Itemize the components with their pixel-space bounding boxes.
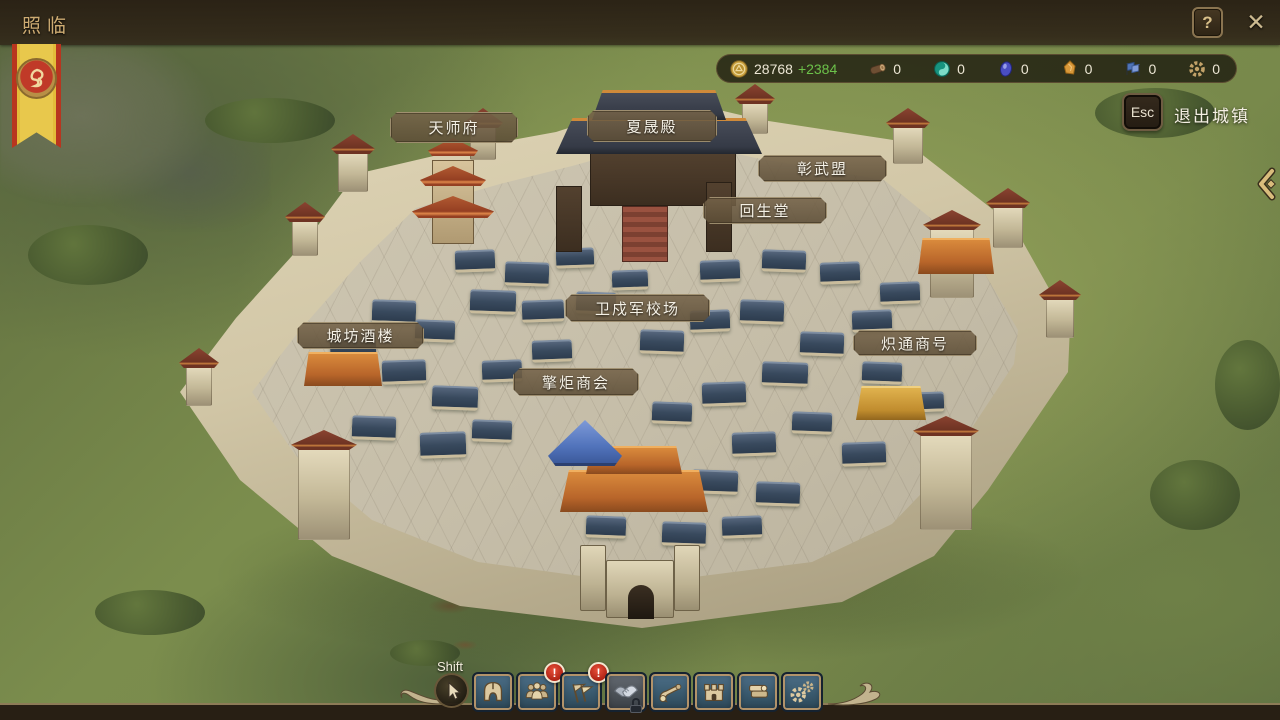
building-label-weishujunxiaochang[interactable]: 卫戍军校场 <box>565 294 710 322</box>
flags-button[interactable]: ! <box>560 672 602 712</box>
ledger-button[interactable] <box>737 672 779 712</box>
jade-value: 0 <box>957 61 965 77</box>
page-title: 照临 <box>22 11 72 38</box>
tree-cluster <box>205 98 335 143</box>
game-viewport: 天师府 夏晟殿 彰武盟 回生堂 卫戍军校场 城坊酒楼 擎炬商会 炽通商号 照临 … <box>0 0 1280 720</box>
building-label-text: 彰武盟 <box>797 158 848 179</box>
esc-keycap[interactable]: Esc <box>1122 93 1163 131</box>
wood-value: 0 <box>893 61 901 77</box>
building-label-xiashengdian[interactable]: 夏晟殿 <box>587 110 717 142</box>
shift-modifier-hint: Shift <box>437 659 463 674</box>
tree-cluster <box>28 225 148 285</box>
jade-resource: 0 <box>932 59 965 79</box>
gold-coin-icon <box>729 59 749 79</box>
tree-cluster <box>95 590 205 635</box>
wood-log-icon <box>868 59 888 79</box>
parts-resource: 0 <box>1187 59 1220 79</box>
gear-resource-icon <box>1187 59 1207 79</box>
amber-value: 0 <box>1085 61 1093 77</box>
jade-swirl-icon <box>932 59 952 79</box>
tree-cluster <box>1215 340 1280 430</box>
flags-icon <box>566 677 596 707</box>
building-label-text: 卫戍军校场 <box>595 298 680 319</box>
amber-icon <box>1060 59 1080 79</box>
chevron-left-icon <box>1256 166 1280 202</box>
banners-value: 0 <box>1148 61 1156 77</box>
ore-resource: 0 <box>996 59 1029 79</box>
building-label-tianshifu[interactable]: 天师府 <box>390 112 518 143</box>
building-label-zhangwumeng[interactable]: 彰武盟 <box>758 155 887 182</box>
city-button[interactable] <box>693 672 735 712</box>
resource-bar: 28768 +2384 0 0 <box>716 54 1237 83</box>
gold-value: 28768 <box>754 61 793 77</box>
wood-resource: 0 <box>868 59 901 79</box>
banners-resource: 0 <box>1123 59 1156 79</box>
building-label-chitongshanghao[interactable]: 炽通商号 <box>853 330 977 356</box>
gold-resource: 28768 +2384 <box>729 59 837 79</box>
people-icon <box>522 677 552 707</box>
cursor-mode-button[interactable] <box>434 673 469 708</box>
scroll-icon <box>655 677 685 707</box>
exit-town-label: 退出城镇 <box>1174 102 1250 127</box>
esc-key-label: Esc <box>1131 104 1154 120</box>
question-mark-icon: ? <box>1202 13 1212 33</box>
building-label-text: 天师府 <box>428 117 479 138</box>
ore-value: 0 <box>1021 61 1029 77</box>
title-bar: 照临 ? ✕ <box>0 0 1280 45</box>
population-button[interactable]: ! <box>516 672 558 712</box>
building-label-text: 城坊酒楼 <box>326 325 394 346</box>
dirt-patch <box>452 640 478 650</box>
terrain-decorations <box>0 0 1280 720</box>
dirt-patch <box>428 598 472 614</box>
building-label-chengfangjiulou[interactable]: 城坊酒楼 <box>297 322 424 349</box>
gears-icon <box>787 677 817 707</box>
building-label-text: 夏晟殿 <box>626 116 677 137</box>
diplomacy-button[interactable] <box>605 672 647 712</box>
castle-icon <box>699 677 729 707</box>
cursor-icon <box>440 679 464 703</box>
toolbar-flourish-right <box>826 676 886 706</box>
settings-button[interactable] <box>781 672 823 712</box>
parts-value: 0 <box>1212 61 1220 77</box>
building-label-text: 炽通商号 <box>881 333 949 354</box>
scroll-button[interactable] <box>649 672 691 712</box>
close-button[interactable]: ✕ <box>1240 6 1272 38</box>
hero-button[interactable] <box>472 672 514 712</box>
blue-gem-icon <box>996 59 1016 79</box>
help-button[interactable]: ? <box>1192 7 1223 38</box>
tree-cluster <box>1150 460 1240 530</box>
dragon-emblem-icon <box>16 58 57 99</box>
building-label-text: 擎炬商会 <box>542 372 610 393</box>
gold-delta: +2384 <box>798 61 837 77</box>
building-label-qingjushanghui[interactable]: 擎炬商会 <box>513 368 639 396</box>
lock-icon <box>629 698 643 714</box>
book-icon <box>743 677 773 707</box>
helmet-icon <box>478 677 508 707</box>
amber-resource: 0 <box>1060 59 1093 79</box>
building-label-huishengtang[interactable]: 回生堂 <box>703 197 827 224</box>
building-label-text: 回生堂 <box>739 200 790 221</box>
war-banner-icon <box>1123 59 1143 79</box>
side-panel-expander[interactable] <box>1256 166 1280 202</box>
